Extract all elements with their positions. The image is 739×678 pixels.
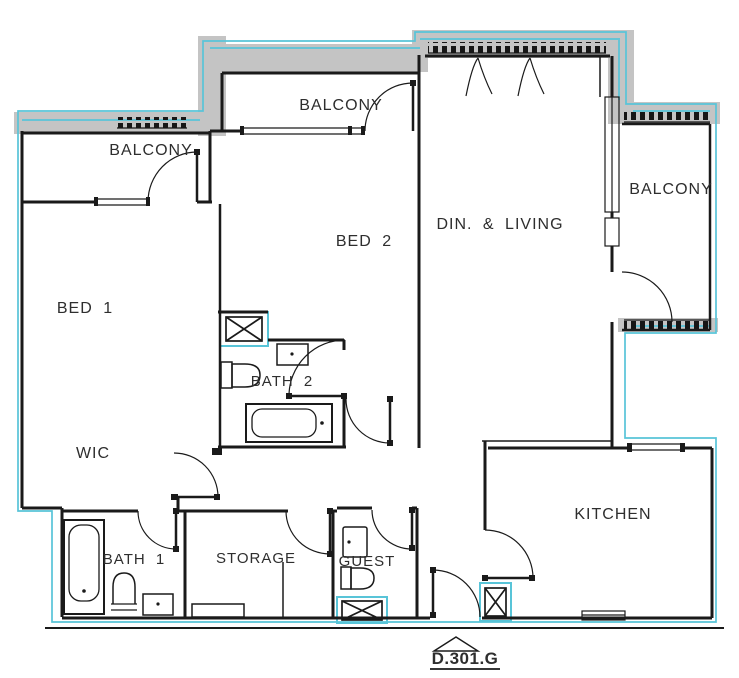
room-label-balcony-right: BALCONY xyxy=(629,181,712,198)
room-label-dining-living: DIN. & LIVING xyxy=(436,216,563,233)
toilet-1 xyxy=(113,573,135,604)
unit-label: D.301.G xyxy=(432,649,499,668)
room-label-balcony-middle: BALCONY xyxy=(299,97,382,114)
room-label-bed-1: BED 1 xyxy=(57,300,113,317)
floor-plan-canvas: BALCONY BALCONY BALCONY BED 1 BED 2 DIN.… xyxy=(0,0,739,678)
toilet-2 xyxy=(221,362,232,388)
room-label-balcony-left: BALCONY xyxy=(109,142,192,159)
room-label-wic: WIC xyxy=(76,445,110,462)
door-leaves xyxy=(174,83,533,617)
door-hinge-blocks xyxy=(171,80,535,618)
room-label-bath-1: BATH 1 xyxy=(103,551,165,568)
shaft-boxes xyxy=(226,317,506,620)
guest-toilet xyxy=(341,567,351,589)
floor-plan-page: BALCONY BALCONY BALCONY BED 1 BED 2 DIN.… xyxy=(0,0,739,678)
exterior-wall-bands xyxy=(14,30,720,332)
room-label-bath-2: BATH 2 xyxy=(251,373,313,390)
room-label-bed-2: BED 2 xyxy=(336,233,392,250)
door-swing-arcs xyxy=(138,58,672,617)
room-label-kitchen: KITCHEN xyxy=(574,506,651,523)
room-label-storage: STORAGE xyxy=(216,550,296,567)
room-label-guest: GUEST xyxy=(339,553,396,570)
wall-end-block xyxy=(212,448,222,455)
bathtub-1 xyxy=(64,520,104,614)
